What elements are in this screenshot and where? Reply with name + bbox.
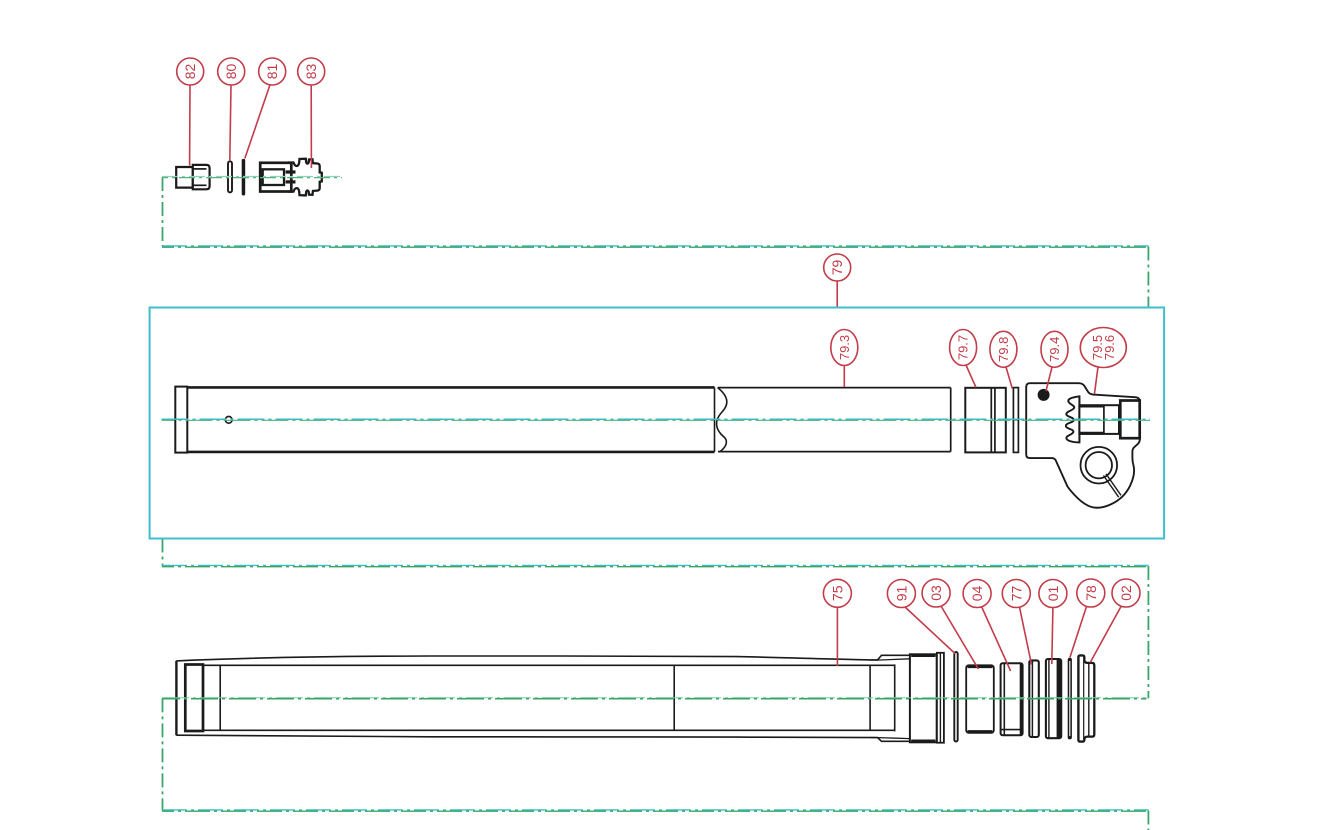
- svg-text:82: 82: [182, 64, 198, 80]
- svg-text:79.4: 79.4: [1047, 337, 1062, 362]
- svg-text:83: 83: [303, 64, 319, 80]
- svg-text:75: 75: [829, 585, 845, 601]
- svg-text:77: 77: [1008, 586, 1024, 602]
- svg-text:81: 81: [264, 64, 280, 80]
- svg-text:02: 02: [1118, 585, 1134, 601]
- svg-text:03: 03: [928, 585, 944, 601]
- svg-text:01: 01: [1045, 586, 1061, 602]
- svg-text:80: 80: [223, 64, 239, 80]
- svg-text:91: 91: [893, 586, 909, 602]
- svg-text:79: 79: [829, 260, 845, 276]
- svg-text:79.7: 79.7: [956, 335, 971, 360]
- svg-text:78: 78: [1083, 585, 1099, 601]
- svg-text:79.3: 79.3: [837, 335, 852, 360]
- svg-text:79.6: 79.6: [1102, 335, 1117, 360]
- svg-text:79.8: 79.8: [996, 337, 1011, 362]
- svg-text:04: 04: [969, 586, 985, 602]
